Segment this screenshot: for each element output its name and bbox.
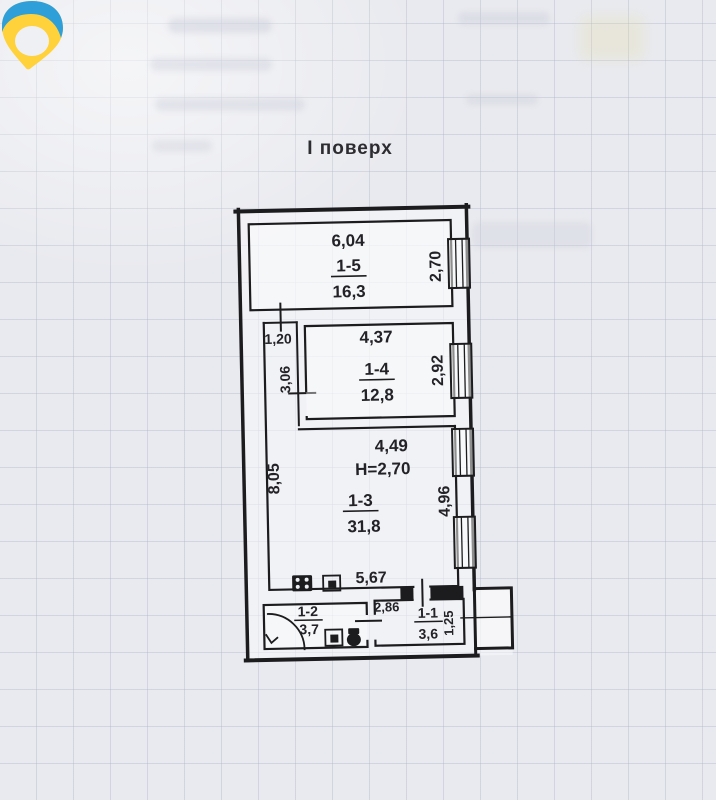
room-1-5-width-dim: 6,04 (331, 231, 365, 251)
room-1-5-area: 16,3 (332, 282, 365, 302)
room-1-3-width-dim: 4,49 (375, 436, 408, 456)
room-1-4-label: 1-4 (364, 359, 390, 379)
room-1-5-label: 1-5 (336, 256, 361, 276)
stove-icon (292, 575, 312, 591)
room-1-1-area: 3,6 (418, 625, 438, 641)
room-1-3-left-dim: 8,05 (266, 463, 284, 495)
floor-plan: 6,04 1-5 16,3 2,70 1,20 4,37 1-4 12,8 2,… (235, 204, 512, 661)
door-opening-mark (280, 304, 281, 331)
window-symbol (450, 344, 472, 398)
door-opening-mark (422, 580, 423, 606)
door-opening-mark (356, 621, 381, 622)
scanned-floor-plan-page: { "header": { "floor_title": "І поверх" … (0, 0, 716, 800)
room-1-2-label: 1-2 (297, 603, 318, 619)
floor-plan-svg: 6,04 1-5 16,3 2,70 1,20 4,37 1-4 12,8 2,… (0, 0, 716, 800)
hall-width-dim: 1,20 (264, 330, 292, 347)
room-1-1-label: 1-1 (418, 604, 439, 620)
window-symbol (452, 429, 474, 476)
window-symbol (448, 239, 470, 288)
room-1-5-right-dim: 2,70 (427, 251, 445, 283)
room-1-4-right-dim: 2,92 (429, 355, 447, 387)
room-1-1-top-dim: 2,86 (374, 599, 400, 615)
room-1-2-area: 3,7 (299, 621, 319, 637)
toilet-icon (347, 628, 361, 646)
room-1-2: 1-2 3,7 (264, 602, 368, 650)
room-1-4-left-dim: 3,06 (277, 366, 294, 394)
room-1-3-bottom-dim: 5,67 (355, 569, 387, 587)
room-1-3-area: 31,8 (347, 517, 380, 537)
room-1-3-label: 1-3 (348, 491, 373, 511)
room-1-3-right-dim: 4,96 (436, 485, 454, 517)
room-1-3-height-note: H=2,70 (355, 459, 411, 479)
room-1-4-area: 12,8 (361, 385, 394, 405)
room-1-1-right-dim: 1,25 (441, 610, 457, 636)
room-1-4-width-dim: 4,37 (359, 327, 392, 347)
window-symbol (454, 517, 476, 568)
